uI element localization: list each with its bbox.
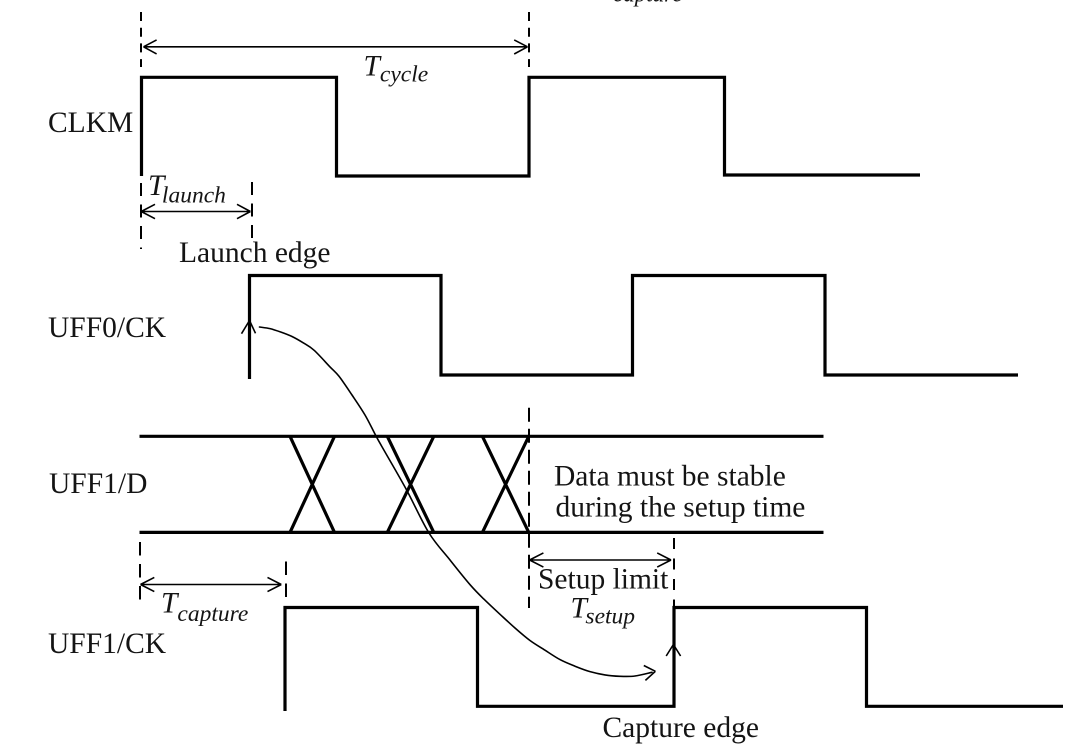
svg-text:Launch edge: Launch edge <box>179 237 331 269</box>
svg-text:during the setup time: during the setup time <box>556 492 806 524</box>
svg-text:CLKM: CLKM <box>48 107 133 139</box>
svg-text:UFF1/D: UFF1/D <box>49 468 147 500</box>
svg-text:Tsetup: Tsetup <box>571 592 636 629</box>
svg-text:Tlaunch: Tlaunch <box>148 170 226 208</box>
svg-text:Data must be stable: Data must be stable <box>554 461 786 493</box>
svg-text:UFF1/CK: UFF1/CK <box>48 628 166 660</box>
svg-text:UFF0/CK: UFF0/CK <box>48 312 166 344</box>
svg-text:Tcycle: Tcycle <box>364 51 429 88</box>
svg-text:Capture edge: Capture edge <box>603 712 759 744</box>
svg-text:Tcapture: Tcapture <box>161 588 248 628</box>
svg-text:Setup limit: Setup limit <box>538 564 669 596</box>
svg-text:capture: capture <box>613 0 682 7</box>
